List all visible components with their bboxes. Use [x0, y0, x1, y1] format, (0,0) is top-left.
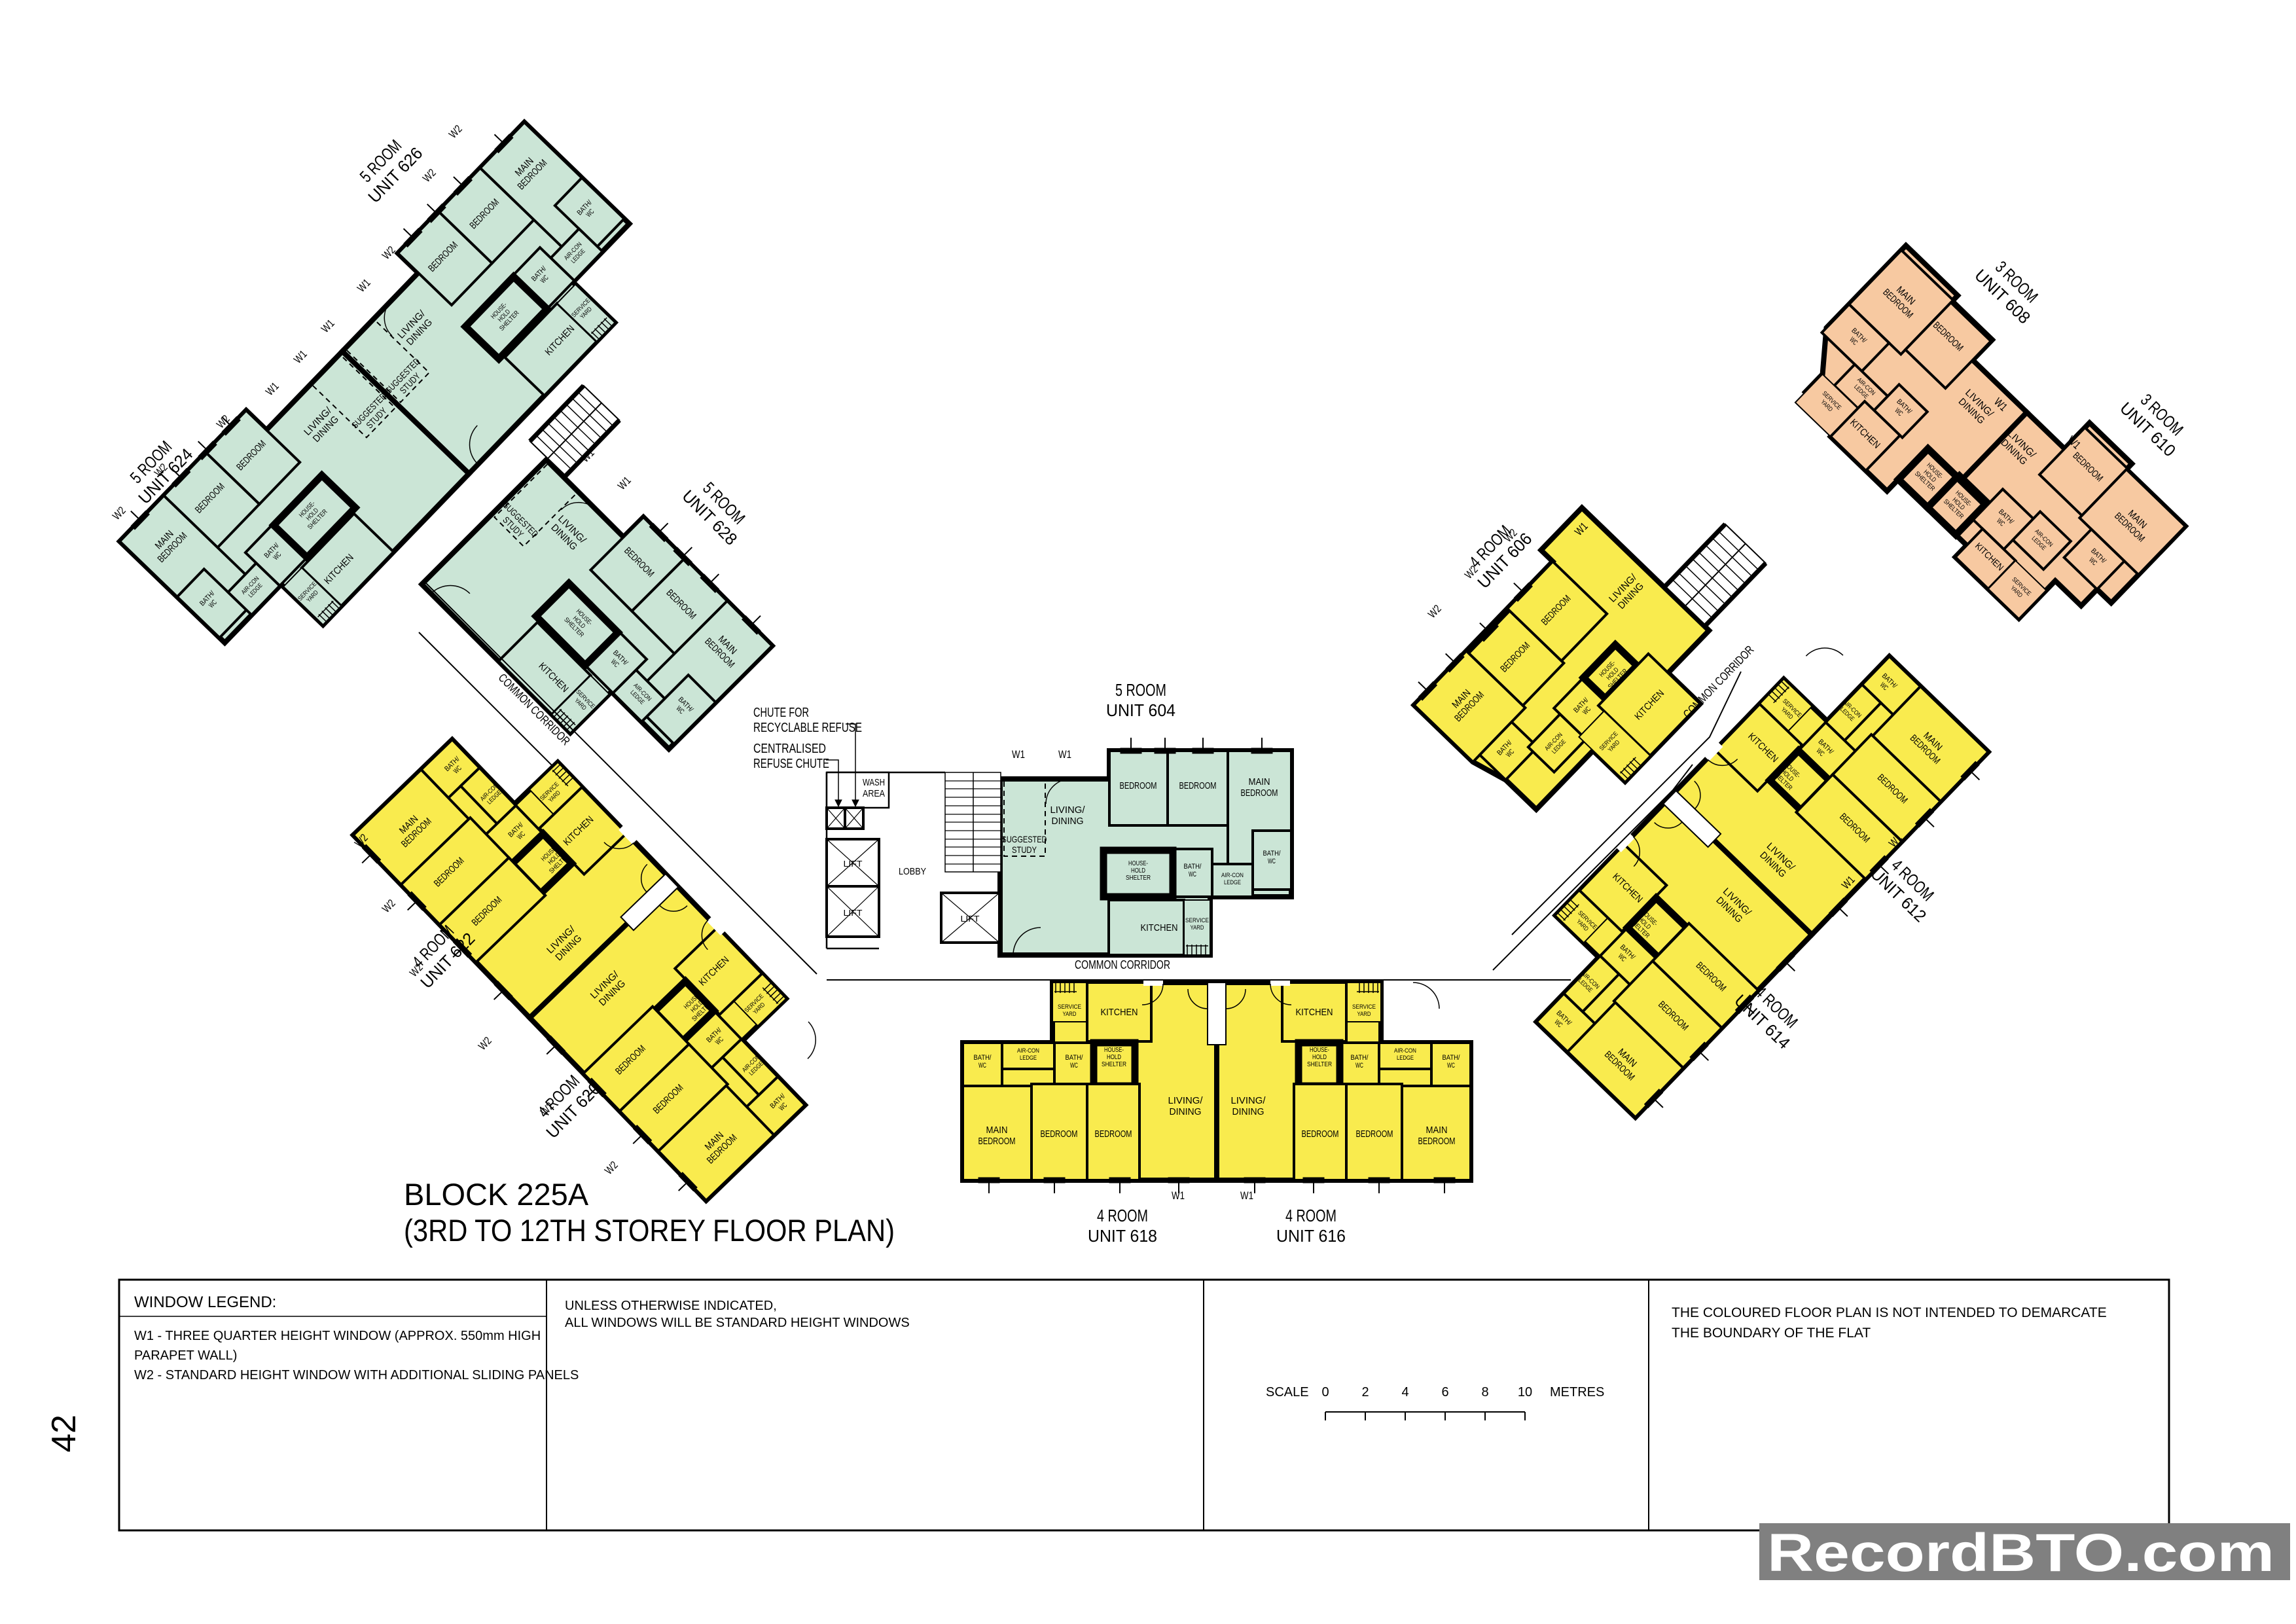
svg-text:SUGGESTED: SUGGESTED — [1002, 834, 1047, 844]
svg-text:HOLD: HOLD — [1107, 1054, 1121, 1061]
svg-text:MAIN: MAIN — [986, 1125, 1008, 1136]
svg-text:LIVING/: LIVING/ — [1168, 1095, 1204, 1106]
svg-text:BATH/: BATH/ — [1066, 1054, 1084, 1062]
svg-text:BEDROOM: BEDROOM — [1418, 1136, 1456, 1147]
svg-text:DINING: DINING — [1052, 816, 1084, 827]
svg-text:LIFT: LIFT — [961, 914, 980, 924]
svg-text:DINING: DINING — [1170, 1106, 1202, 1117]
svg-text:YARD: YARD — [1063, 1011, 1077, 1018]
svg-text:0: 0 — [1321, 1385, 1329, 1399]
svg-text:AIR-CON: AIR-CON — [1221, 872, 1244, 879]
svg-text:SHELTER: SHELTER — [1307, 1061, 1332, 1068]
svg-text:BEDROOM: BEDROOM — [1120, 780, 1157, 791]
svg-text:KITCHEN: KITCHEN — [1296, 1007, 1333, 1018]
svg-text:8: 8 — [1481, 1385, 1488, 1399]
svg-text:MAIN: MAIN — [1249, 776, 1270, 787]
svg-text:AIR-CON: AIR-CON — [1394, 1047, 1416, 1055]
svg-text:BEDROOM: BEDROOM — [978, 1136, 1016, 1147]
svg-text:RECYCLABLE REFUSE: RECYCLABLE REFUSE — [753, 721, 862, 735]
svg-text:MAIN: MAIN — [1426, 1125, 1448, 1136]
svg-text:LIFT: LIFT — [844, 859, 863, 869]
svg-text:WC: WC — [1268, 857, 1276, 865]
svg-text:YARD: YARD — [1191, 924, 1204, 931]
svg-text:KITCHEN: KITCHEN — [1141, 922, 1178, 933]
svg-text:BATH/: BATH/ — [974, 1054, 992, 1062]
svg-text:CENTRALISED: CENTRALISED — [753, 742, 826, 756]
svg-text:WASH: WASH — [863, 777, 885, 788]
svg-text:W1: W1 — [1058, 748, 1071, 761]
svg-text:AREA: AREA — [863, 788, 885, 799]
svg-text:BATH/: BATH/ — [1351, 1054, 1369, 1062]
svg-text:UNLESS OTHERWISE INDICATED,: UNLESS OTHERWISE INDICATED, — [565, 1299, 777, 1313]
svg-text:2: 2 — [1361, 1385, 1369, 1399]
svg-text:LEDGE: LEDGE — [1397, 1055, 1414, 1062]
svg-text:HOLD: HOLD — [1312, 1054, 1327, 1061]
svg-text:METRES: METRES — [1550, 1385, 1604, 1399]
svg-text:WINDOW LEGEND:: WINDOW LEGEND: — [134, 1293, 276, 1311]
svg-text:THE BOUNDARY OF THE FLAT: THE BOUNDARY OF THE FLAT — [1672, 1326, 1871, 1341]
svg-text:SERVICE: SERVICE — [1185, 917, 1209, 924]
svg-text:(3RD TO 12TH STOREY FLOOR PLAN: (3RD TO 12TH STOREY FLOOR PLAN) — [404, 1213, 895, 1248]
svg-text:LIVING/: LIVING/ — [1231, 1095, 1266, 1106]
svg-text:LIVING/: LIVING/ — [1050, 804, 1086, 816]
svg-text:UNIT 616: UNIT 616 — [1276, 1226, 1346, 1246]
svg-text:UNIT 604: UNIT 604 — [1106, 700, 1175, 720]
svg-text:BEDROOM: BEDROOM — [1179, 780, 1217, 791]
svg-text:42: 42 — [45, 1415, 83, 1453]
svg-text:W2 - STANDARD HEIGHT WINDOW WI: W2 - STANDARD HEIGHT WINDOW WITH ADDITIO… — [134, 1368, 579, 1382]
svg-text:5 ROOM: 5 ROOM — [1115, 680, 1166, 700]
svg-text:SCALE: SCALE — [1266, 1385, 1309, 1399]
svg-text:10: 10 — [1518, 1385, 1532, 1399]
svg-text:WC: WC — [978, 1062, 986, 1070]
svg-text:HOUSE-: HOUSE- — [1310, 1047, 1329, 1054]
svg-text:HOUSE-: HOUSE- — [1104, 1047, 1124, 1054]
svg-text:RecordBTO.com: RecordBTO.com — [1767, 1523, 2274, 1583]
svg-text:WC: WC — [1447, 1062, 1455, 1070]
svg-text:BEDROOM: BEDROOM — [1095, 1128, 1132, 1140]
svg-text:DINING: DINING — [1232, 1106, 1265, 1117]
svg-text:REFUSE CHUTE: REFUSE CHUTE — [753, 757, 829, 771]
svg-text:BATH/: BATH/ — [1263, 850, 1282, 857]
svg-text:BATH/: BATH/ — [1184, 863, 1202, 871]
svg-text:HOLD: HOLD — [1131, 867, 1145, 875]
svg-text:HOUSE-: HOUSE- — [1128, 860, 1148, 867]
svg-text:COMMON CORRIDOR: COMMON CORRIDOR — [1075, 958, 1170, 971]
svg-text:SHELTER: SHELTER — [1102, 1061, 1126, 1068]
svg-text:BEDROOM: BEDROOM — [1241, 787, 1278, 799]
svg-text:CHUTE FOR: CHUTE FOR — [753, 706, 809, 720]
svg-text:UNIT 618: UNIT 618 — [1088, 1226, 1157, 1246]
svg-text:6: 6 — [1441, 1385, 1448, 1399]
svg-text:WC: WC — [1189, 871, 1196, 878]
svg-text:W1: W1 — [1172, 1189, 1185, 1202]
svg-text:LEDGE: LEDGE — [1020, 1055, 1037, 1062]
svg-text:4 ROOM: 4 ROOM — [1097, 1206, 1148, 1225]
svg-text:W1: W1 — [1240, 1189, 1253, 1202]
svg-text:WC: WC — [1070, 1062, 1078, 1070]
svg-text:WC: WC — [1355, 1062, 1363, 1070]
svg-text:LOBBY: LOBBY — [899, 866, 926, 877]
svg-text:SERVICE: SERVICE — [1352, 1003, 1376, 1011]
svg-text:BEDROOM: BEDROOM — [1041, 1128, 1078, 1140]
svg-text:BEDROOM: BEDROOM — [1356, 1128, 1393, 1140]
svg-text:THE COLOURED FLOOR PLAN IS NOT: THE COLOURED FLOOR PLAN IS NOT INTENDED … — [1672, 1305, 2107, 1320]
svg-text:STUDY: STUDY — [1012, 844, 1037, 855]
svg-text:KITCHEN: KITCHEN — [1101, 1007, 1138, 1018]
svg-text:AIR-CON: AIR-CON — [1017, 1047, 1039, 1055]
svg-text:BATH/: BATH/ — [1443, 1054, 1461, 1062]
svg-text:ALL WINDOWS WILL BE STANDARD H: ALL WINDOWS WILL BE STANDARD HEIGHT WIND… — [565, 1316, 910, 1330]
svg-text:4 ROOM: 4 ROOM — [1285, 1206, 1336, 1225]
svg-text:W1 - THREE QUARTER HEIGHT WIN: W1 - THREE QUARTER HEIGHT WINDOW (APPROX… — [134, 1329, 541, 1343]
svg-text:YARD: YARD — [1357, 1011, 1371, 1018]
svg-text:SERVICE: SERVICE — [1058, 1003, 1081, 1011]
svg-text:BLOCK 225A: BLOCK 225A — [404, 1177, 589, 1212]
svg-text:SHELTER: SHELTER — [1126, 875, 1151, 882]
svg-text:LIFT: LIFT — [844, 908, 863, 918]
svg-text:W1: W1 — [1012, 748, 1025, 761]
svg-text:4: 4 — [1401, 1385, 1408, 1399]
svg-text:BEDROOM: BEDROOM — [1302, 1128, 1339, 1140]
svg-text:PARAPET WALL): PARAPET WALL) — [134, 1348, 237, 1363]
svg-text:LEDGE: LEDGE — [1224, 879, 1241, 886]
